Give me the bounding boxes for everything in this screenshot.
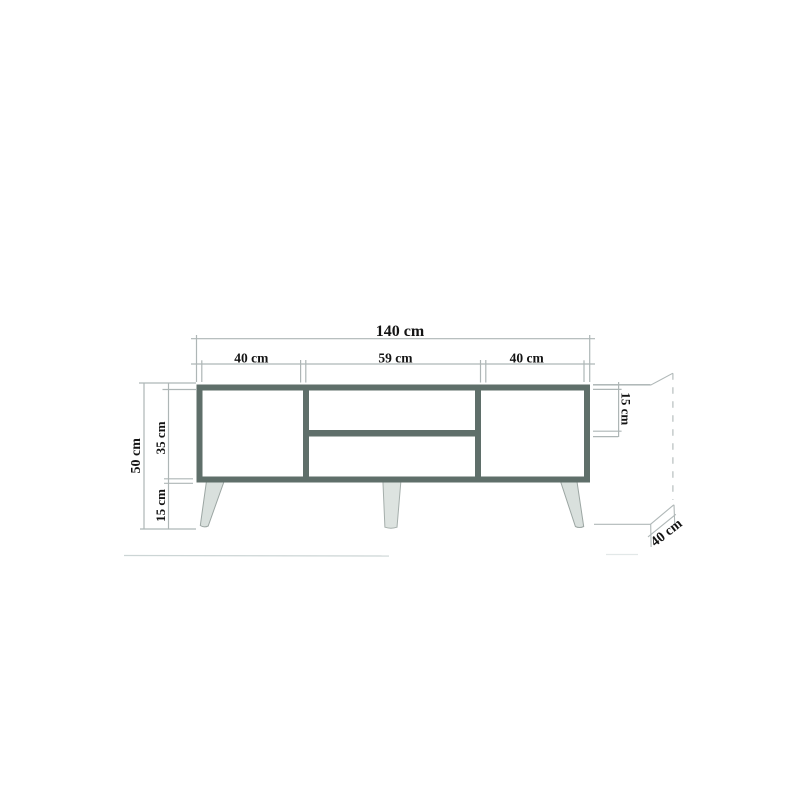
svg-text:15 cm: 15 cm — [619, 392, 634, 425]
svg-text:40 cm: 40 cm — [510, 350, 545, 365]
svg-text:35 cm: 35 cm — [153, 421, 168, 454]
svg-text:59 cm: 59 cm — [378, 350, 413, 365]
svg-text:40 cm: 40 cm — [234, 350, 269, 365]
svg-text:140 cm: 140 cm — [376, 323, 425, 340]
svg-text:15 cm: 15 cm — [153, 489, 168, 522]
svg-text:50 cm: 50 cm — [129, 438, 144, 474]
